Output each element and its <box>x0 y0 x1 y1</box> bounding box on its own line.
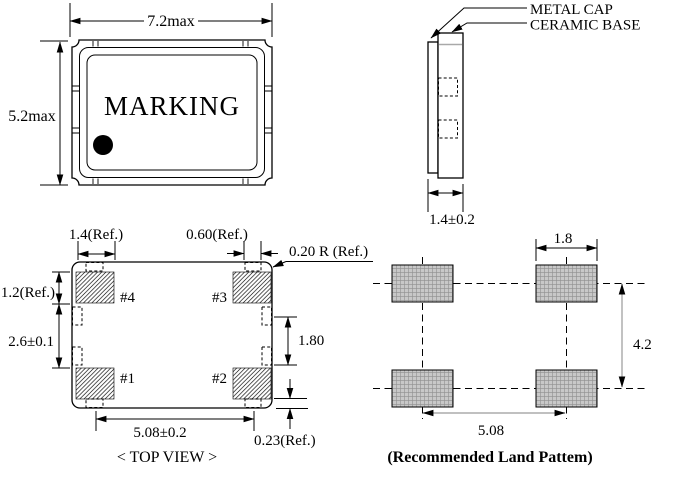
ceramic-base-label: CERAMIC BASE <box>530 18 640 34</box>
land-pad-top-right <box>536 265 597 302</box>
pad-height-dim-label: 1.2(Ref.) <box>1 285 55 301</box>
package-drawing: MARKING 7.2max 5.2max METAL CAP CERAMIC … <box>0 0 680 477</box>
package-outline-view: MARKING 7.2max 5.2max <box>8 3 272 185</box>
thickness-dim-label: 1.4±0.2 <box>429 212 475 228</box>
pad-width-extension-lines <box>78 241 115 260</box>
pin4-label: #4 <box>120 290 136 306</box>
pin3-label: #3 <box>212 290 227 306</box>
metal-cap-label: METAL CAP <box>530 2 613 18</box>
ceramic-base-body <box>438 33 463 178</box>
land-pattern-caption: (Recommended Land Pattem) <box>387 449 592 466</box>
land-pad-bottom-right <box>536 370 597 407</box>
pad-width-dim-label: 1.4(Ref.) <box>69 227 123 243</box>
row-pitch-dim-label: 4.2 <box>633 337 652 353</box>
col-pitch-dim-label: 5.08 <box>478 423 504 439</box>
pad-pitch-dim-label: 5.08±0.2 <box>133 425 186 441</box>
pin2-label: #2 <box>212 371 227 387</box>
marking-text: MARKING <box>104 91 240 121</box>
side-notch-extension-lines <box>274 317 297 365</box>
notch-width-extension-lines <box>244 241 261 260</box>
top-view: #4 #3 #1 #2 1.4(Ref.) 0.60(Ref.) 0.20 R … <box>1 227 373 466</box>
drawing-svg: MARKING 7.2max 5.2max METAL CAP CERAMIC … <box>0 0 680 477</box>
metal-cap-body <box>428 42 438 173</box>
pad-4 <box>76 272 114 303</box>
pad-2 <box>233 368 271 399</box>
width-dim-label: 7.2max <box>147 13 195 30</box>
inner-gap-dim-label: 2.6±0.1 <box>8 334 54 350</box>
notch-width-dim-label: 0.60(Ref.) <box>186 227 248 243</box>
land-pattern-view: 1.8 4.2 5.08 (Recommended Land Pattem) <box>373 231 652 466</box>
pad-3 <box>233 272 271 303</box>
land-pad-top-left <box>392 265 453 302</box>
top-view-caption: < TOP VIEW > <box>117 449 217 466</box>
pin1-indicator-dot <box>93 135 113 155</box>
pin1-label: #1 <box>120 371 135 387</box>
corner-radius-leader-arrow <box>273 262 286 268</box>
edge-margin-dim-label: 0.23(Ref.) <box>254 433 316 449</box>
edge-margin-extension-lines <box>274 399 308 409</box>
side-view: METAL CAP CERAMIC BASE 1.4±0.2 <box>428 2 640 228</box>
land-pad-width-dim-label: 1.8 <box>554 231 573 247</box>
height-dim-label: 5.2max <box>8 108 56 125</box>
land-pad-bottom-left <box>392 370 453 407</box>
pad-1 <box>76 368 114 399</box>
corner-radius-dim-label: 0.20 R (Ref.) <box>289 244 368 260</box>
thickness-extension-lines <box>428 179 463 212</box>
side-notch-dim-label: 1.80 <box>298 333 324 349</box>
ceramic-base-leader <box>452 23 527 32</box>
